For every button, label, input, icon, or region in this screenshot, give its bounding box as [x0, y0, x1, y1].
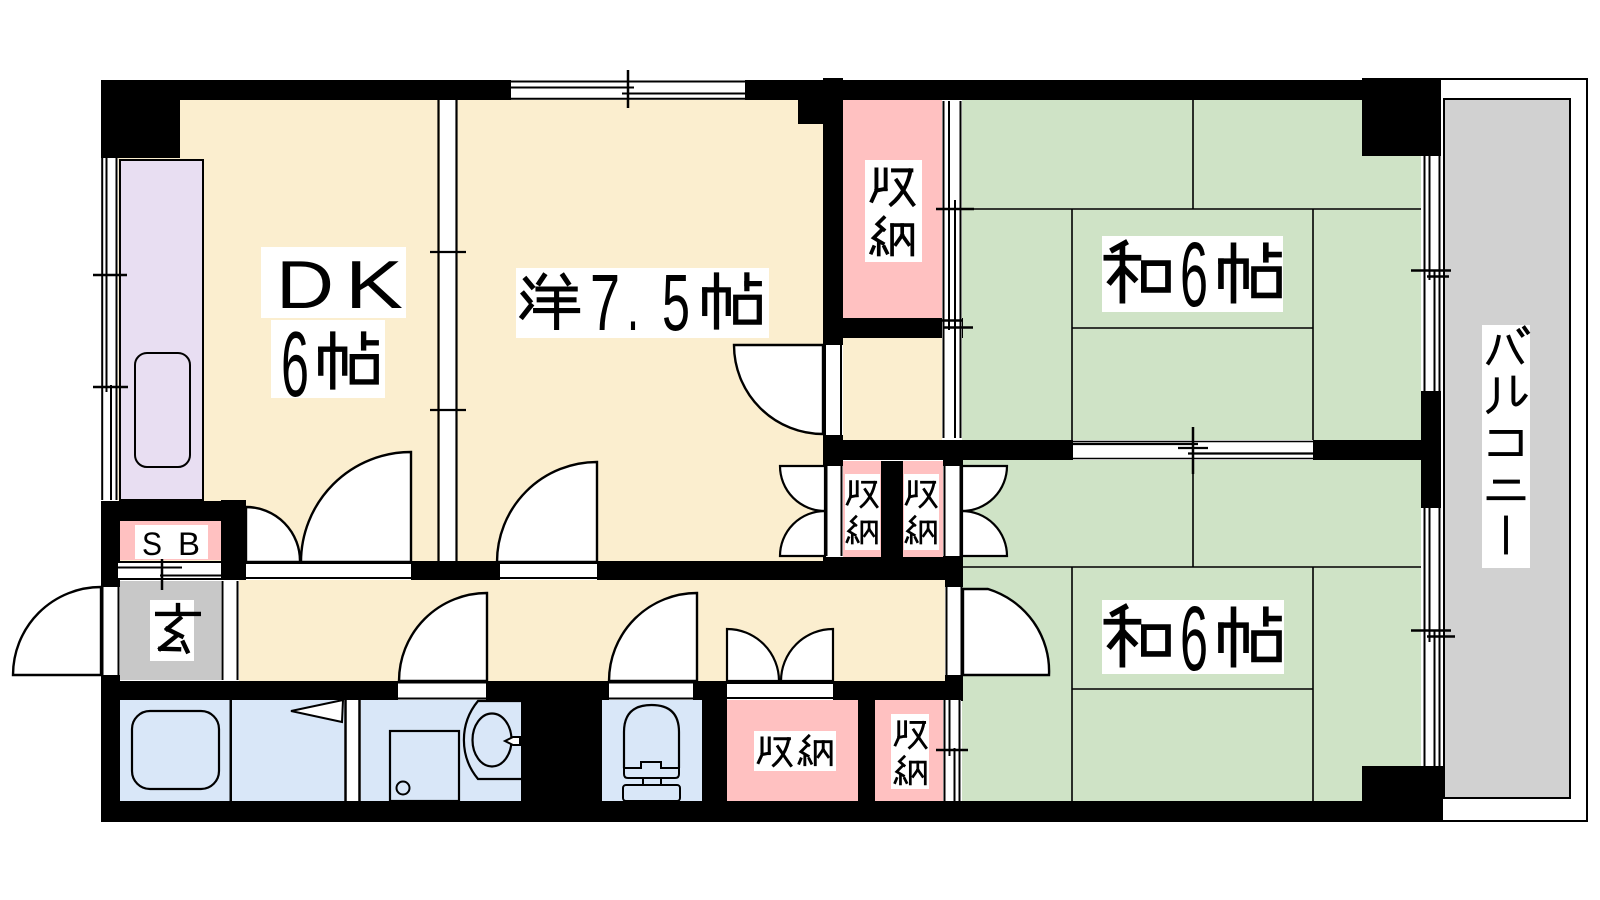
svg-text:K: K [345, 247, 403, 323]
svg-text:6: 6 [1180, 588, 1208, 690]
svg-text:.: . [627, 258, 639, 347]
svg-text:6: 6 [281, 312, 309, 416]
svg-text:7: 7 [590, 258, 620, 347]
svg-text:S: S [142, 526, 162, 562]
svg-text:5: 5 [662, 258, 690, 347]
svg-text:6: 6 [1180, 224, 1208, 326]
svg-text:B: B [178, 526, 200, 562]
